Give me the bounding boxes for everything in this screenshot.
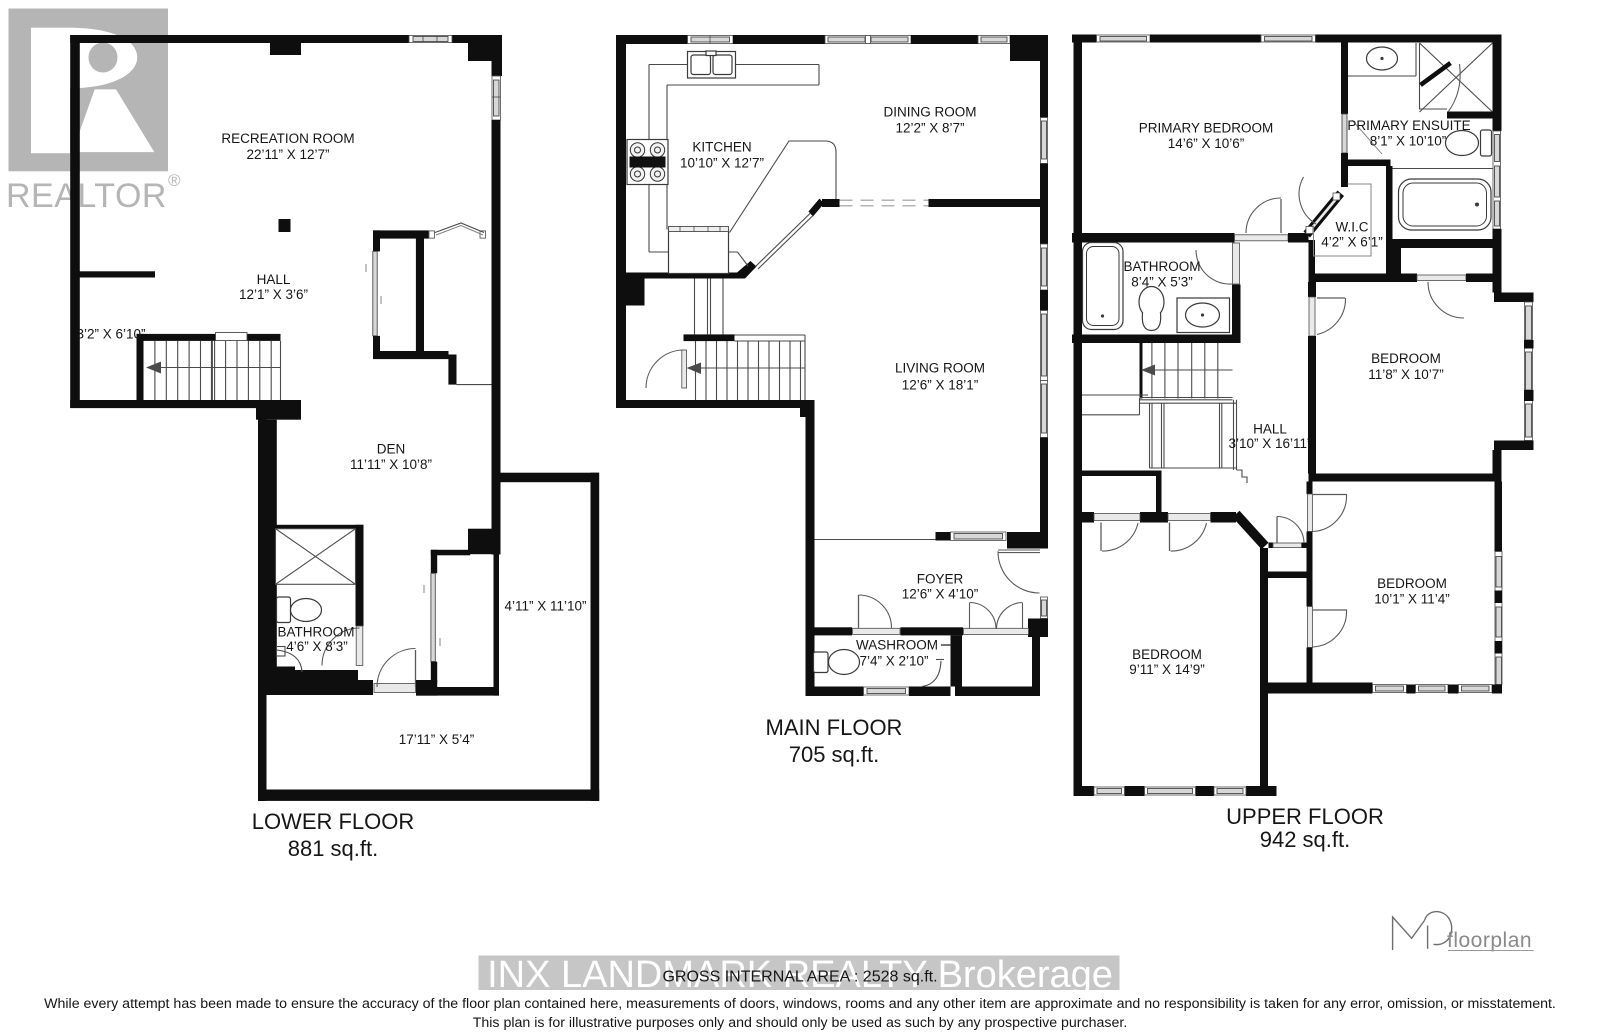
svg-text:BEDROOM: BEDROOM <box>1377 576 1447 591</box>
svg-text:4’6” X 8’3”: 4’6” X 8’3” <box>286 639 348 654</box>
svg-text:PRIMARY BEDROOM: PRIMARY BEDROOM <box>1139 121 1274 136</box>
svg-text:BATHROOM: BATHROOM <box>1124 259 1201 274</box>
svg-text:KITCHEN: KITCHEN <box>692 140 751 155</box>
svg-text:12’6” X 18’1”: 12’6” X 18’1” <box>902 378 979 393</box>
svg-text:14’6” X 10’6”: 14’6” X 10’6” <box>1168 136 1245 151</box>
svg-text:WASHROOM: WASHROOM <box>856 638 938 653</box>
svg-text:7’4” X 2’10”: 7’4” X 2’10” <box>859 654 928 669</box>
svg-text:®: ® <box>168 171 181 190</box>
svg-text:DINING ROOM: DINING ROOM <box>884 105 977 120</box>
svg-text:DEN: DEN <box>377 442 406 457</box>
svg-text:4’2” X 6’1”: 4’2” X 6’1” <box>1321 235 1383 250</box>
svg-text:BATHROOM: BATHROOM <box>278 625 355 640</box>
svg-text:11’11” X 10’8”: 11’11” X 10’8” <box>350 457 432 472</box>
svg-text:This plan is for illustrative: This plan is for illustrative purposes o… <box>473 1015 1128 1031</box>
svg-text:12’2” X 8’7”: 12’2” X 8’7” <box>895 121 964 136</box>
svg-text:LOWER FLOOR: LOWER FLOOR <box>252 809 415 834</box>
svg-text:BEDROOM: BEDROOM <box>1371 351 1441 366</box>
svg-text:HALL: HALL <box>257 272 291 287</box>
svg-text:RECREATION ROOM: RECREATION ROOM <box>221 131 354 146</box>
svg-text:GROSS INTERNAL AREA : 2528 sq.: GROSS INTERNAL AREA : 2528 sq.ft. <box>662 969 937 986</box>
svg-text:12’1” X 3’6”: 12’1” X 3’6” <box>239 287 308 302</box>
svg-text:8’4” X 5’3”: 8’4” X 5’3” <box>1131 275 1193 290</box>
svg-text:HALL: HALL <box>1253 422 1287 437</box>
svg-text:17’11” X 5’4”: 17’11” X 5’4” <box>399 732 475 747</box>
svg-text:While every attempt has been m: While every attempt has been made to ens… <box>44 996 1556 1012</box>
svg-text:BEDROOM: BEDROOM <box>1132 647 1202 662</box>
svg-text:FOYER: FOYER <box>917 572 964 587</box>
svg-text:3’10” X 16’11”: 3’10” X 16’11” <box>1228 436 1311 451</box>
svg-text:PRIMARY ENSUITE: PRIMARY ENSUITE <box>1347 118 1470 133</box>
svg-text:10’1” X 11’4”: 10’1” X 11’4” <box>1374 592 1450 607</box>
svg-text:881 sq.ft.: 881 sq.ft. <box>288 836 379 861</box>
svg-text:8’1” X 10’10”: 8’1” X 10’10” <box>1370 134 1447 149</box>
svg-text:REALTOR: REALTOR <box>6 177 167 215</box>
svg-text:floorplan: floorplan <box>1447 929 1532 952</box>
svg-text:22’11” X 12’7”: 22’11” X 12’7” <box>246 147 329 162</box>
svg-text:LIVING ROOM: LIVING ROOM <box>895 361 985 376</box>
svg-text:3’2” X 6’10”: 3’2” X 6’10” <box>76 327 145 342</box>
svg-text:10’10” X 12’7”: 10’10” X 12’7” <box>680 156 764 171</box>
svg-text:MAIN FLOOR: MAIN FLOOR <box>766 715 903 740</box>
svg-text:12’6” X 4’10”: 12’6” X 4’10” <box>902 587 979 602</box>
svg-text:11’8” X 10’7”: 11’8” X 10’7” <box>1368 367 1444 382</box>
svg-text:W.I.C: W.I.C <box>1336 220 1369 235</box>
svg-text:UPPER FLOOR: UPPER FLOOR <box>1226 804 1384 829</box>
svg-text:9’11” X 14’9”: 9’11” X 14’9” <box>1129 662 1205 677</box>
svg-text:942 sq.ft.: 942 sq.ft. <box>1260 827 1351 852</box>
svg-text:705 sq.ft.: 705 sq.ft. <box>789 742 880 767</box>
svg-text:4’11” X 11’10”: 4’11” X 11’10” <box>504 599 586 614</box>
